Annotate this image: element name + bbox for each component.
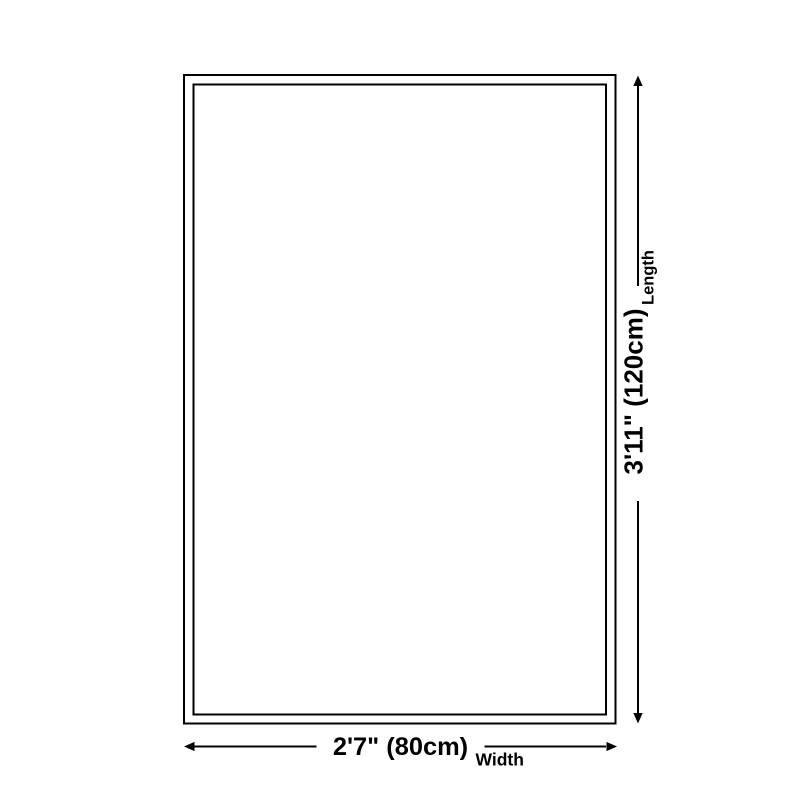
svg-text:3'11" (120cm): 3'11" (120cm) xyxy=(619,309,649,475)
svg-text:Length: Length xyxy=(640,250,658,305)
svg-text:Width: Width xyxy=(476,750,524,770)
svg-text:2'7" (80cm): 2'7" (80cm) xyxy=(333,733,468,761)
